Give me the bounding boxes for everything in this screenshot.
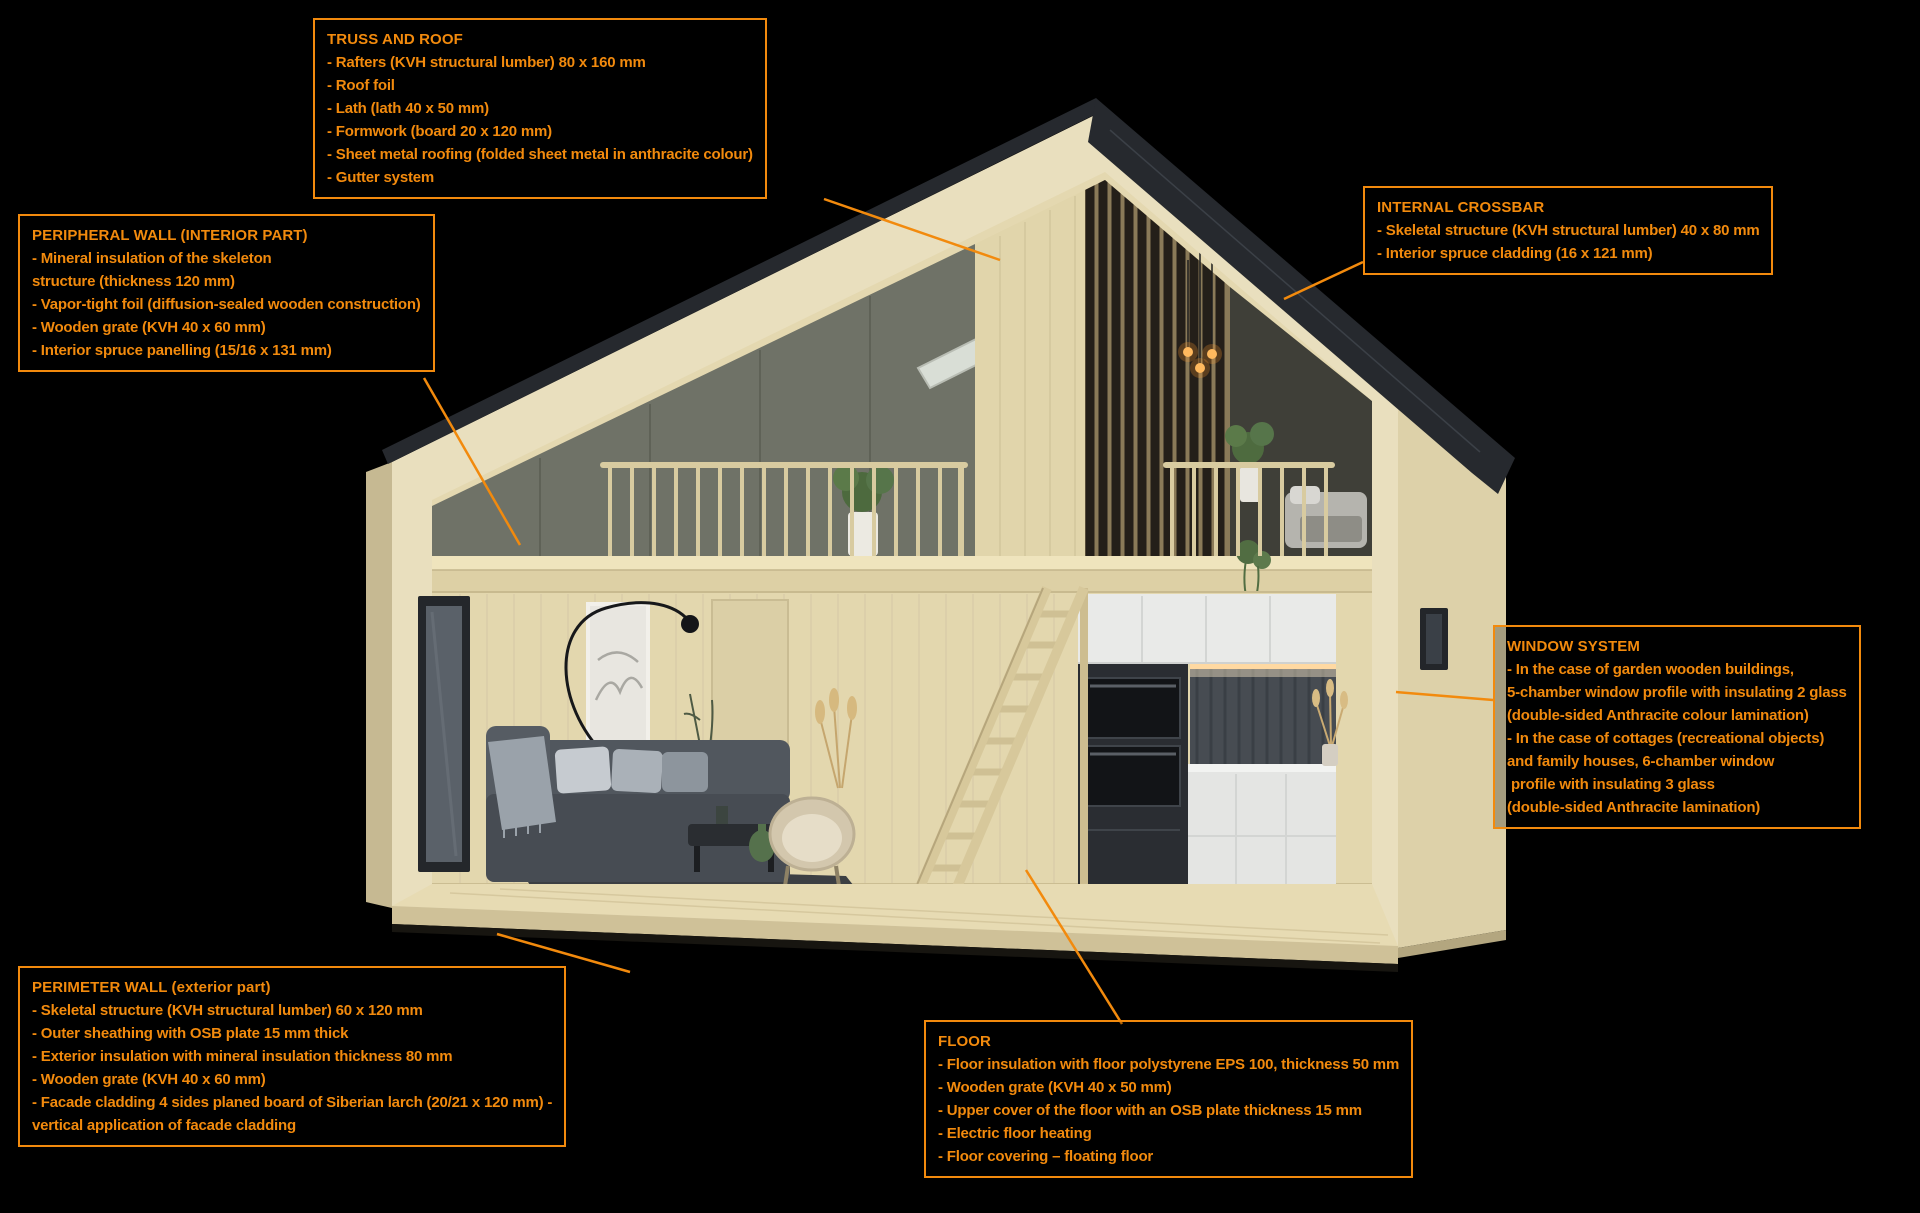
upper-cabinets [1078, 594, 1336, 664]
callout-line: - Outer sheathing with OSB plate 15 mm t… [32, 1022, 552, 1045]
sofa-cushion [611, 749, 663, 794]
callout-title: PERIMETER WALL (exterior part) [32, 976, 552, 999]
callout-line: vertical application of facade cladding [32, 1114, 552, 1137]
callout-line: structure (thickness 120 mm) [32, 270, 421, 293]
callout-line: - Vapor-tight foil (diffusion-sealed woo… [32, 293, 421, 316]
callout-line: - Mineral insulation of the skeleton [32, 247, 421, 270]
callout-line: and family houses, 6-chamber window [1507, 750, 1847, 773]
floor-platform [392, 884, 1398, 972]
callout-line: (double-sided Anthracite lamination) [1507, 796, 1847, 819]
loft-floor [432, 556, 1372, 592]
callout-line: - Skeletal structure (KVH structural lum… [1377, 219, 1759, 242]
callout-line: - Floor covering – floating floor [938, 1145, 1399, 1168]
callout-line: - Electric floor heating [938, 1122, 1399, 1145]
sofa [486, 726, 790, 882]
callout-line: (double-sided Anthracite colour laminati… [1507, 704, 1847, 727]
callout-line: - Rafters (KVH structural lumber) 80 x 1… [327, 51, 753, 74]
wall-art [588, 604, 648, 746]
callout-line: - Formwork (board 20 x 120 mm) [327, 120, 753, 143]
callout-line: - Exterior insulation with mineral insul… [32, 1045, 552, 1068]
callout-internal-crossbar: INTERNAL CROSSBAR - Skeletal structure (… [1363, 186, 1773, 275]
callout-line: - In the case of cottages (recreational … [1507, 727, 1847, 750]
left-wall-window [418, 596, 470, 872]
infographic-canvas: TRUSS AND ROOF - Rafters (KVH structural… [0, 0, 1920, 1213]
kitchen [1078, 594, 1348, 902]
callout-line: - In the case of garden wooden buildings… [1507, 658, 1847, 681]
callout-line: - Lath (lath 40 x 50 mm) [327, 97, 753, 120]
under-cabinet-light [1190, 664, 1336, 669]
callout-line: profile with insulating 3 glass [1507, 773, 1847, 796]
base-cabinets [1186, 772, 1336, 902]
callout-line: - Floor insulation with floor polystyren… [938, 1053, 1399, 1076]
callout-line: - Facade cladding 4 sides planed board o… [32, 1091, 552, 1114]
callout-title: WINDOW SYSTEM [1507, 635, 1847, 658]
callout-line: - Upper cover of the floor with an OSB p… [938, 1099, 1399, 1122]
callout-title: INTERNAL CROSSBAR [1377, 196, 1759, 219]
countertop [1186, 764, 1336, 772]
callout-line: - Skeletal structure (KVH structural lum… [32, 999, 552, 1022]
callout-line: - Wooden grate (KVH 40 x 60 mm) [32, 316, 421, 339]
callout-line: - Interior spruce panelling (15/16 x 131… [32, 339, 421, 362]
sofa-cushion [662, 752, 708, 792]
callout-floor: FLOOR - Floor insulation with floor poly… [924, 1020, 1413, 1178]
callout-line: - Gutter system [327, 166, 753, 189]
callout-line: - Interior spruce cladding (16 x 121 mm) [1377, 242, 1759, 265]
callout-line: - Wooden grate (KVH 40 x 60 mm) [32, 1068, 552, 1091]
callout-title: TRUSS AND ROOF [327, 28, 753, 51]
backsplash [1190, 669, 1336, 766]
sofa-cushion [555, 746, 612, 794]
callout-line: - Roof foil [327, 74, 753, 97]
callout-peripheral-wall: PERIPHERAL WALL (INTERIOR PART) - Minera… [18, 214, 435, 372]
callout-title: PERIPHERAL WALL (INTERIOR PART) [32, 224, 421, 247]
callout-truss-and-roof: TRUSS AND ROOF - Rafters (KVH structural… [313, 18, 767, 199]
callout-line: 5-chamber window profile with insulating… [1507, 681, 1847, 704]
callout-line: - Wooden grate (KVH 40 x 50 mm) [938, 1076, 1399, 1099]
callout-line: - Sheet metal roofing (folded sheet meta… [327, 143, 753, 166]
loft-wood-panel [975, 190, 1085, 560]
callout-title: FLOOR [938, 1030, 1399, 1053]
callout-perimeter-wall: PERIMETER WALL (exterior part) - Skeleta… [18, 966, 566, 1147]
oven-column [1078, 664, 1188, 902]
callout-window-system: WINDOW SYSTEM - In the case of garden wo… [1493, 625, 1861, 829]
loft-glass-wall [432, 244, 975, 560]
